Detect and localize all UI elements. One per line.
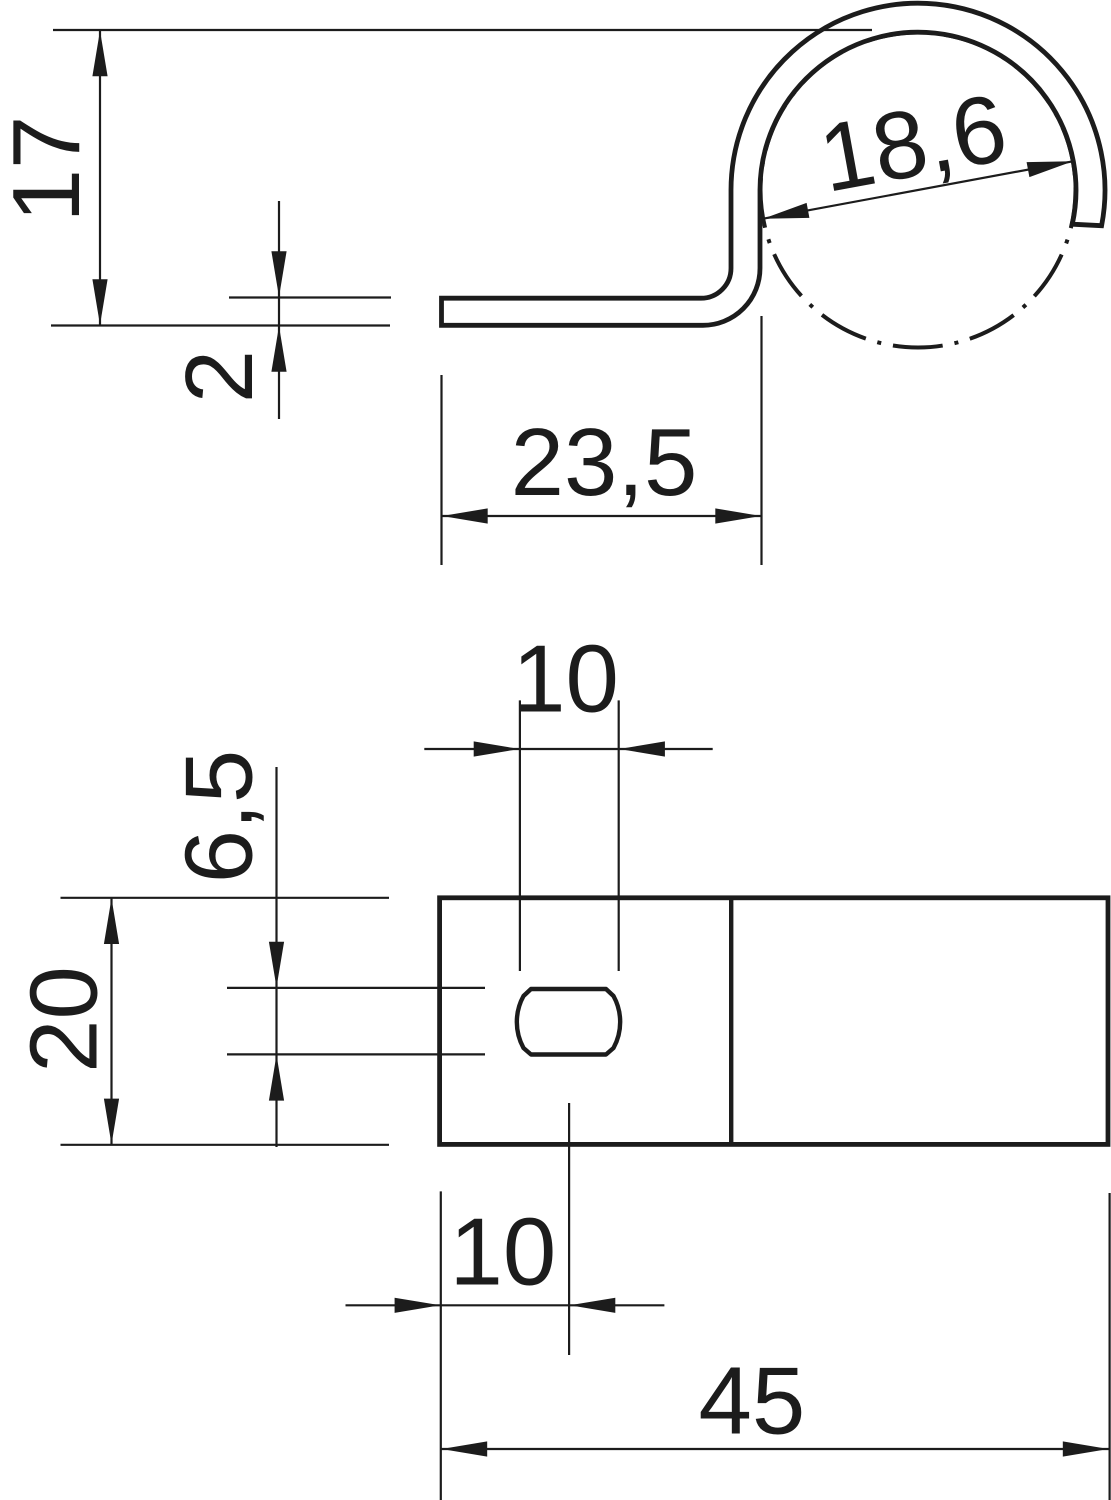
svg-text:10: 10 <box>512 626 619 733</box>
svg-text:45: 45 <box>699 1348 806 1455</box>
svg-text:23,5: 23,5 <box>511 409 698 516</box>
svg-text:2: 2 <box>166 350 273 403</box>
svg-text:10: 10 <box>450 1199 557 1306</box>
svg-text:17: 17 <box>0 116 100 223</box>
svg-text:20: 20 <box>11 966 118 1073</box>
svg-text:6,5: 6,5 <box>166 750 273 883</box>
